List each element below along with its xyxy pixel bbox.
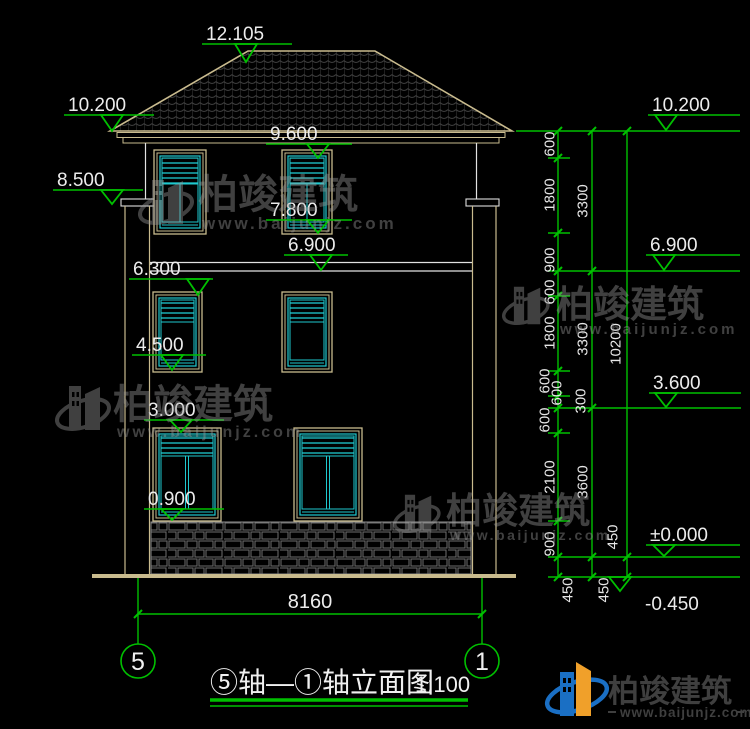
- elevation-canvas: 12.105 10.200 8.500 9.600 7.800 6.900: [0, 0, 750, 729]
- dim-label: 600: [541, 131, 558, 156]
- level-marker: 3.600: [649, 373, 741, 407]
- ground-width-label: 8160: [288, 591, 333, 613]
- level-label: 4.500: [136, 335, 184, 356]
- drawing-scale: 1:100: [415, 672, 470, 697]
- watermark: 柏竣建筑 www.baijunjz.com: [53, 383, 303, 441]
- level-marker: ±0.000: [646, 525, 740, 556]
- dim-label: 600: [548, 380, 565, 405]
- level-marker: 10.200: [648, 95, 740, 130]
- watermark-site: www.baijunjz.com: [116, 424, 303, 441]
- level-marker: 6.900: [284, 235, 348, 270]
- window-1f-center: [294, 428, 362, 521]
- right-ledge: [466, 199, 499, 206]
- watermark-brand: 柏竣建筑: [198, 173, 358, 217]
- dim-label: 450: [595, 577, 612, 602]
- level-label: 0.900: [148, 489, 196, 510]
- dim-label: 450: [559, 577, 576, 602]
- watermark-brand: 柏竣建筑: [446, 490, 590, 531]
- level-label: 10.200: [68, 95, 126, 116]
- hip-roof: [110, 51, 512, 131]
- chain-outer-labels: 10200 450: [604, 323, 624, 549]
- brand-footer: 柏竣建筑 www.baijunjz.com: [543, 662, 750, 720]
- level-marker: 6.900: [646, 235, 740, 270]
- level-label: 3.600: [653, 373, 701, 394]
- level-marker: -0.450: [609, 577, 699, 615]
- watermark-brand: 柏竣建筑: [556, 283, 704, 325]
- level-marker: 6.300: [129, 259, 213, 295]
- ground-line: [92, 574, 516, 578]
- dim-label: 300: [572, 388, 589, 413]
- watermark-site: www.baijunjz.com: [559, 321, 737, 338]
- level-label: 6.900: [650, 235, 698, 256]
- watermark-site: www.baijunjz.com: [201, 214, 397, 233]
- level-label: ±0.000: [650, 525, 708, 546]
- brand-name: 柏竣建筑: [608, 674, 732, 709]
- dim-label: 3300: [574, 184, 591, 217]
- level-label: 6.900: [288, 235, 336, 256]
- dim-label: 1800: [541, 178, 558, 211]
- brand-logo-icon: [543, 662, 611, 719]
- dim-label: 600: [536, 407, 553, 432]
- axis-number-left: 5: [131, 648, 145, 676]
- dim-label: 2100: [541, 460, 558, 493]
- cad-elevation-drawing: 12.105 10.200 8.500 9.600 7.800 6.900: [0, 0, 750, 729]
- bottom-dimension: 8160 5 1: [121, 578, 499, 678]
- drawing-title-block: ⑤轴—①轴立面图 1:100: [210, 667, 470, 706]
- watermark-brand: 柏竣建筑: [113, 383, 273, 427]
- level-label: 12.105: [206, 24, 264, 45]
- level-label: 8.500: [57, 170, 105, 191]
- level-label: -0.450: [645, 594, 699, 615]
- watermark-site: www.baijunjz.com: [449, 527, 611, 543]
- level-label: 10.200: [652, 95, 710, 116]
- axis-number-right: 1: [475, 648, 489, 676]
- level-label: 6.300: [133, 259, 181, 280]
- brand-site: www.baijunjz.com: [619, 705, 750, 720]
- level-label: 9.600: [270, 124, 318, 145]
- dim-label: 900: [541, 247, 558, 272]
- window-2f-left: [153, 292, 202, 372]
- watermark: 柏竣建筑 www.baijunjz.com: [501, 283, 738, 338]
- window-2f-center: [282, 292, 332, 372]
- drawing-title: ⑤轴—①轴立面图: [210, 667, 434, 698]
